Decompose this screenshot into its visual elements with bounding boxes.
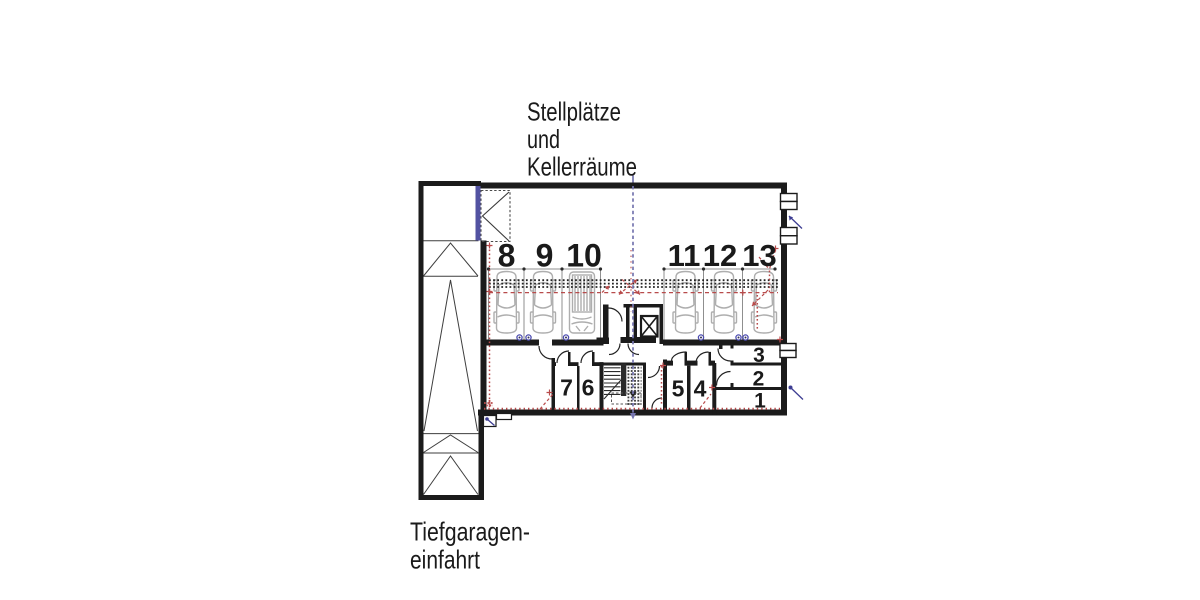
svg-text:1: 1 bbox=[754, 390, 766, 413]
svg-text:5: 5 bbox=[672, 376, 685, 402]
svg-text:6: 6 bbox=[582, 375, 595, 401]
svg-text:2: 2 bbox=[753, 368, 765, 391]
svg-text:12: 12 bbox=[703, 238, 737, 273]
svg-text:9: 9 bbox=[536, 238, 554, 274]
svg-text:und: und bbox=[527, 124, 560, 154]
svg-text:Stellplätze: Stellplätze bbox=[527, 97, 621, 127]
svg-text:einfahrt: einfahrt bbox=[410, 545, 481, 575]
svg-text:13: 13 bbox=[742, 238, 776, 273]
svg-text:11: 11 bbox=[668, 238, 701, 273]
svg-text:8: 8 bbox=[498, 238, 516, 274]
svg-text:7: 7 bbox=[560, 375, 573, 401]
svg-text:3: 3 bbox=[753, 344, 765, 367]
svg-text:Kellerräume: Kellerräume bbox=[527, 152, 637, 182]
svg-text:4: 4 bbox=[694, 376, 707, 402]
svg-text:Tiefgaragen-: Tiefgaragen- bbox=[410, 517, 530, 547]
svg-text:10: 10 bbox=[566, 238, 602, 274]
